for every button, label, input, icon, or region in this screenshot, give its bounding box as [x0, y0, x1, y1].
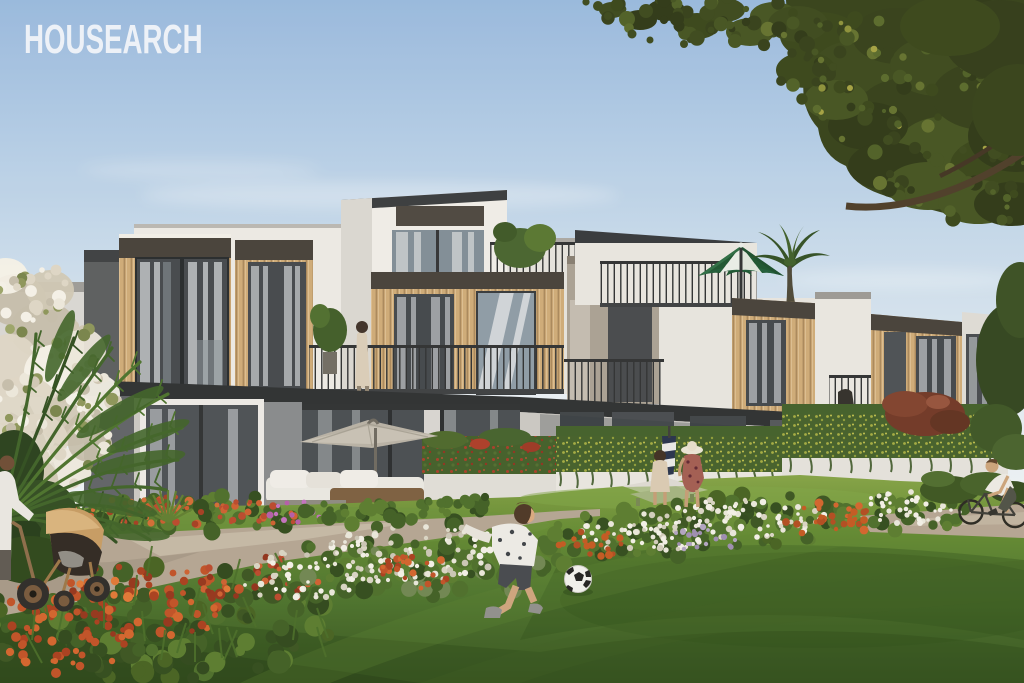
svg-text:HOUSEARCH: HOUSEARCH [24, 17, 203, 63]
